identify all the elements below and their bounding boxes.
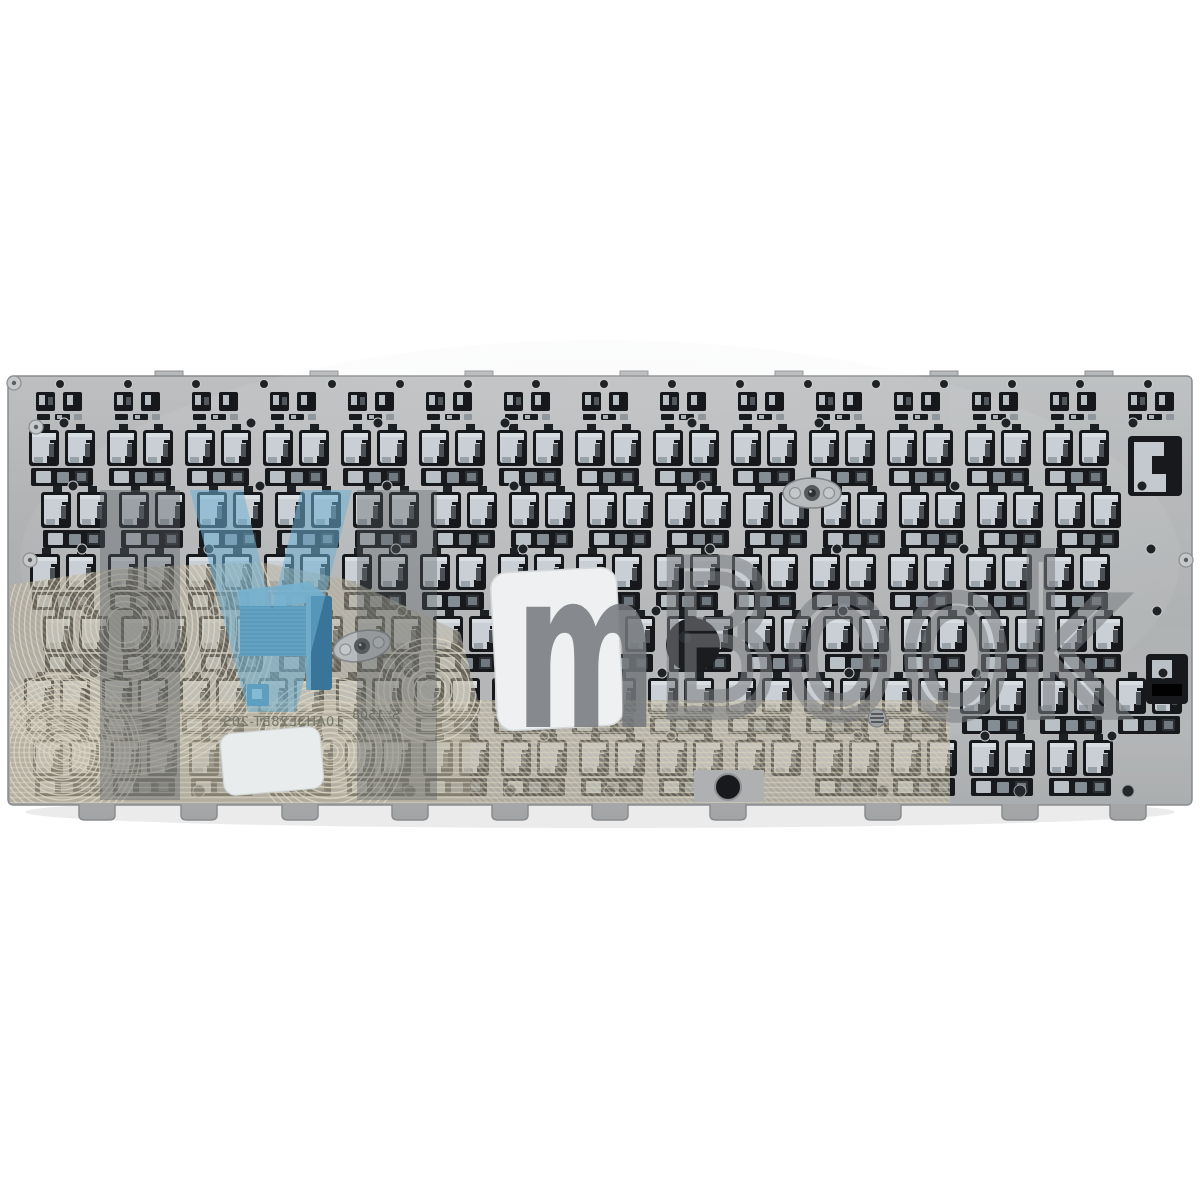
stabilizer-hole [694, 770, 764, 802]
watermark-logo-m-left-bar [100, 490, 180, 800]
keyboard-back-photo: 10AH3E28BT-20S S: 1508 m Book [0, 0, 1200, 1200]
watermark-letter-m: m [515, 524, 657, 780]
screw-lug-top [783, 478, 841, 508]
part-number-inscription: 10AH3E28BT-20S [223, 715, 343, 730]
watermark-word-book: Book [655, 520, 1126, 762]
watermark-logo-m-right-bar [357, 490, 437, 800]
sticker-bottom-left [219, 726, 324, 796]
product-photo: 10AH3E28BT-20S S: 1508 m Book [0, 0, 1200, 1200]
